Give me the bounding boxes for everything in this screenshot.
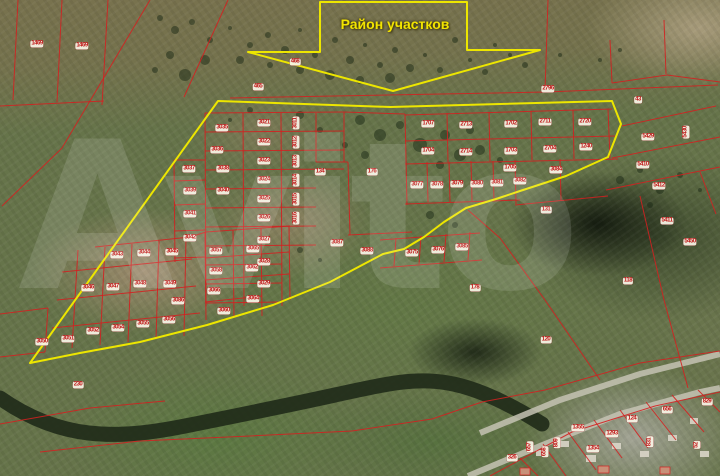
parcel-label: 131 <box>541 207 552 214</box>
parcel-label: 5429 <box>641 134 654 141</box>
parcel-label: 3064 <box>246 296 259 303</box>
parcel-label: 3057 <box>209 248 222 255</box>
parcel-label: 1705 <box>503 165 516 172</box>
parcel-label: 1469 <box>30 41 43 48</box>
parcel-label: 3027 <box>257 237 270 244</box>
parcel-label: 3049 <box>163 281 176 288</box>
parcel-label: 3039 <box>183 188 196 195</box>
parcel-label: 3076 <box>431 247 444 254</box>
parcel-label: 3047 <box>106 284 119 291</box>
parcel-label: 3050 <box>35 339 48 346</box>
parcel-label: 3060 <box>217 308 230 315</box>
parcel-label: 3044 <box>137 250 150 257</box>
parcel-label: 465 <box>253 84 264 91</box>
parcel-label: 2711 <box>538 119 551 126</box>
parcel-label: 3078 <box>430 182 443 189</box>
parcel-label: 52 <box>694 441 701 449</box>
parcel-label: 3011 <box>293 116 300 129</box>
parcel-label: 134 <box>315 169 326 176</box>
parcel-label: 809 <box>554 438 561 449</box>
parcel-label: 118 <box>623 278 633 285</box>
parcel-label: 3025 <box>257 196 270 203</box>
map-screenshot: 1469146946846527964317072713170227112720… <box>0 0 720 476</box>
parcel-label: 3036 <box>210 147 223 154</box>
parcel-label: 3048 <box>133 281 146 288</box>
parcel-label: 3056 <box>162 317 175 324</box>
parcel-label: 3086 <box>171 298 184 305</box>
parcel-label: 3081 <box>490 180 503 187</box>
parcel-label: 3013 <box>293 154 300 167</box>
parcel-label: 1355 <box>571 425 584 432</box>
parcel-label: 3045 <box>165 249 178 256</box>
parcel-label: 3066 <box>207 288 220 295</box>
parcel-label: 3058 <box>209 268 222 275</box>
parcel-label: 3029 <box>257 281 270 288</box>
parcel-label: 5430 <box>683 125 690 138</box>
parcel-label: 3038 <box>216 166 229 173</box>
parcel-label: 3065 <box>246 246 259 253</box>
parcel-label: 3021 <box>257 120 270 127</box>
parcel-label: 829 <box>702 399 713 406</box>
parcel-label: 3052 <box>86 328 99 335</box>
parcel-label: 3077 <box>410 182 423 189</box>
parcel-label: 120 <box>541 337 552 344</box>
callout-label: Район участков <box>322 16 468 32</box>
parcel-label: 3040 <box>216 188 229 195</box>
parcel-label: 176 <box>367 169 378 176</box>
parcel-label: 1702 <box>504 121 517 128</box>
parcel-label: 5412 <box>652 183 665 190</box>
parcel-label: 1704 <box>421 148 434 155</box>
parcel-label: 1240 <box>579 144 592 151</box>
parcel-label: 3015 <box>293 192 300 205</box>
parcel-label: 3051 <box>61 336 74 343</box>
parcel-label: 1703 <box>504 148 517 155</box>
parcel-label: 3041 <box>183 211 196 218</box>
parcel-label: 656 <box>662 407 673 414</box>
parcel-label: 658 <box>542 447 549 458</box>
parcel-label: 2796 <box>541 86 554 93</box>
parcel-label: 2714 <box>459 149 472 156</box>
parcel-label: 178 <box>470 285 481 292</box>
parcel-label: 657 <box>527 442 534 453</box>
parcel-label: 1354 <box>586 446 599 453</box>
parcel-label: 1469 <box>75 43 88 50</box>
parcel-label: 5450 <box>683 239 696 246</box>
parcel-label: 831 <box>647 437 654 448</box>
parcel-label: 3043 <box>110 252 123 259</box>
parcel-label: 3046 <box>81 285 94 292</box>
parcel-label: 3042 <box>183 235 196 242</box>
parcel-label: 1707 <box>421 121 434 128</box>
parcel-label: 3079 <box>450 181 463 188</box>
parcel-label: 2713 <box>459 122 472 129</box>
parcel-label: 3012 <box>293 135 300 148</box>
parcel-label: 3014 <box>293 173 300 186</box>
parcel-label: 326 <box>507 455 518 462</box>
parcel-label: 2704 <box>543 146 556 153</box>
parcel-label: 3023 <box>257 158 270 165</box>
parcel-label: 5411 <box>660 218 673 225</box>
parcel-label: 3088 <box>360 248 373 255</box>
parcel-label: 3028 <box>257 259 270 266</box>
parcel-label: 1293 <box>605 431 618 438</box>
parcel-label: 3084 <box>549 167 562 174</box>
parcel-label: 3022 <box>257 139 270 146</box>
parcel-label: 3082 <box>513 178 526 185</box>
parcel-label: 468 <box>290 59 301 66</box>
parcel-label: 3024 <box>257 177 270 184</box>
parcel-labels-layer: 1469146946846527964317072713170227112720… <box>0 0 720 476</box>
parcel-label: 3016 <box>293 211 300 224</box>
parcel-label: 3087 <box>330 240 343 247</box>
parcel-label: 3055 <box>136 321 149 328</box>
parcel-label: 43 <box>634 97 642 104</box>
parcel-label: 3035 <box>215 125 228 132</box>
parcel-label: 3085 <box>455 244 468 251</box>
parcel-label: 124 <box>627 416 638 423</box>
parcel-label: 3075 <box>405 250 418 257</box>
parcel-label: 2720 <box>578 119 591 126</box>
parcel-label: 3080 <box>470 181 483 188</box>
parcel-label: 3037 <box>182 166 195 173</box>
parcel-label: 3054 <box>111 325 124 332</box>
parcel-label: 230 <box>73 382 84 389</box>
parcel-label: 3062 <box>245 265 258 272</box>
parcel-label: 5410 <box>636 162 649 169</box>
parcel-label: 3026 <box>257 215 270 222</box>
